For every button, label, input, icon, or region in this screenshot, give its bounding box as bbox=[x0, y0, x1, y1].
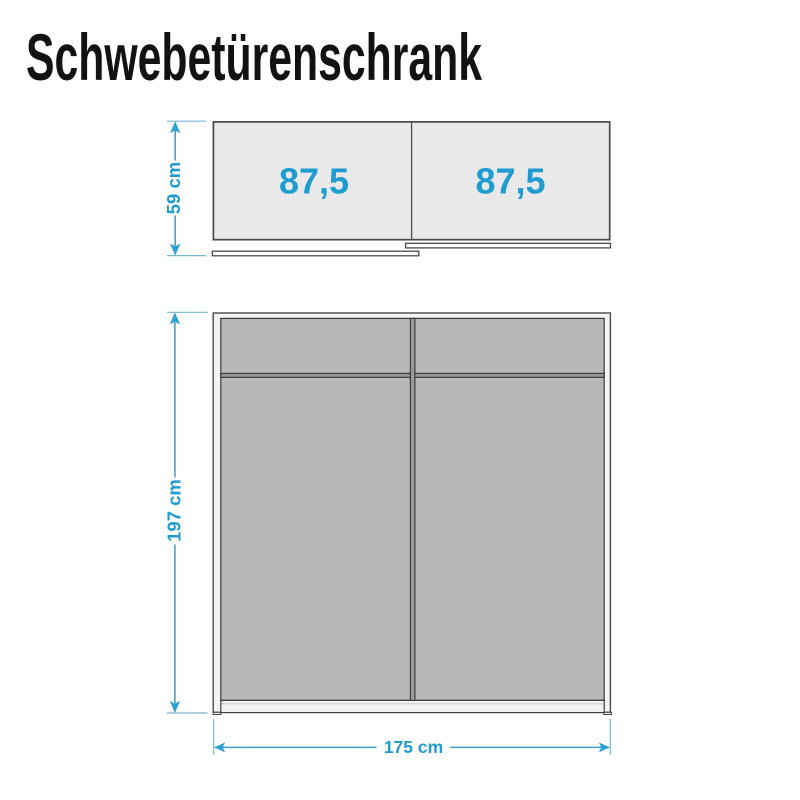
svg-text:175 cm: 175 cm bbox=[384, 737, 443, 757]
svg-text:Schwebetürenschrank: Schwebetürenschrank bbox=[26, 21, 482, 94]
svg-text:87,5: 87,5 bbox=[475, 161, 545, 202]
svg-text:87,5: 87,5 bbox=[279, 161, 349, 202]
svg-text:59 cm: 59 cm bbox=[163, 162, 184, 214]
svg-text:197 cm: 197 cm bbox=[163, 479, 184, 542]
